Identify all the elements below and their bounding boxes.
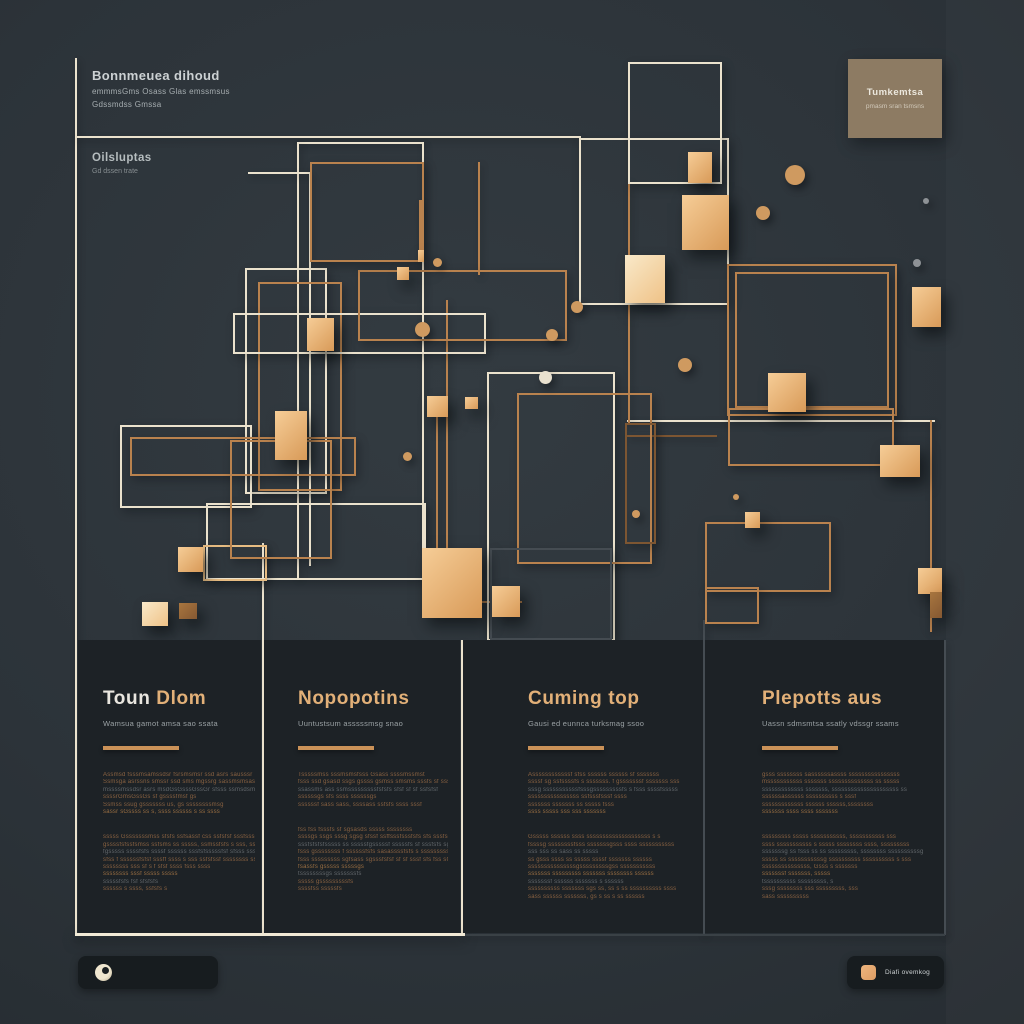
gold-cube: [745, 512, 760, 528]
paragraph-line: ssssss s ssss, ssfsfs s: [103, 886, 255, 893]
outline-rectangle: [625, 423, 656, 544]
paragraph-line: ssssssss sssf sssss sssss: [103, 871, 255, 878]
paragraph-line: sssss ss sssssssssssg ssssssssss sssssss…: [762, 857, 932, 864]
paragraph-line: fssssg ssssssssfsss sssssssgsss ssss sss…: [528, 842, 696, 849]
accent-line: [75, 136, 581, 138]
column-subtitle: Wamsua gamot amsa sao ssata: [103, 719, 255, 728]
accent-dot: [433, 258, 442, 267]
accent-line: [465, 934, 945, 936]
gold-cube: [930, 592, 942, 618]
paragraph-line: fss fss fsssfs sf sgsasds sssss ssssssss: [298, 827, 448, 834]
column-paragraph: Gsssss ssssss ssss ssssssssssssssssssss …: [528, 834, 696, 901]
paragraph-line: fgsssss ssssfsfs ssssf ssssss sssfsfssss…: [103, 849, 255, 856]
paragraph-line: sssssssssssss ssssss ssssss,ssssssss: [762, 802, 932, 809]
accent-line: [297, 142, 424, 144]
paragraph-line: sssssss sssssss ss sssss fsss: [528, 802, 696, 809]
gold-cube: [422, 548, 482, 618]
accent-dot: [785, 165, 805, 185]
paragraph-line: ssssssss sss sf s f sfsf ssss fsss ssss: [103, 864, 255, 871]
column-content: Cuming topGausi ed eunnca turksmag ssooA…: [528, 688, 696, 901]
gold-chip-icon: [861, 965, 876, 980]
column-rule: [762, 746, 838, 750]
paragraph-line: ssssssassssss ssssssssss s sssf: [762, 794, 932, 801]
paragraph-line: Assmsd fsssmsamssdsr fsrsmsmsr ssd asrs …: [103, 772, 255, 779]
paragraph-line: sssfsfsfsfsssss ss sssssfgsssssf sssssfs…: [298, 842, 448, 849]
tan-card: Tumkemtsa pmasm sran tsmsns: [848, 59, 942, 138]
accent-dot: [415, 322, 430, 337]
accent-line: [478, 162, 480, 275]
swirl-icon: [95, 964, 112, 981]
poster-subtitle-line-1: emmmsGms Osass Glas emssmsus: [92, 87, 230, 96]
column-subtitle: Uuntustsum asssssmsg snao: [298, 719, 448, 728]
column-content: NopopotinsUuntustsum asssssmsg snaoTssss…: [298, 688, 448, 894]
gold-cube: [492, 586, 520, 617]
paragraph-line: sssssssf sssssss, sssss: [762, 871, 932, 878]
paragraph-line: sass ssssssssss: [762, 894, 932, 901]
column-heading-accent: Plepotts aus: [762, 688, 882, 709]
paragraph-line: ssssf sg ssfssssfs s sssssss. f gsssssss…: [528, 779, 696, 786]
paragraph-line: sssssssssssss sssssss, sssssssssssssssss…: [762, 787, 932, 794]
column-paragraph: Assmsd fsssmsamssdsr fsrsmsmsr ssd asrs …: [103, 772, 255, 816]
gold-cube: [918, 568, 942, 594]
paragraph-line: gssssfsfssfsmss ssfsms ss sssss, ssmssfs…: [103, 842, 255, 849]
column-heading-accent: Cuming top: [528, 688, 640, 709]
header-title-block: Bonnmeuea dihoud emmmsGms Osass Glas ems…: [92, 68, 230, 109]
column-paragraph: sssssssss sssss sssssssssss, sssssssssss…: [762, 834, 932, 901]
paragraph-line: sssssssf ssssss sssssss s ssssss: [528, 879, 696, 886]
paragraph-line: Ssmsga asrssns smssr ssd sms mgssrg sass…: [103, 779, 255, 786]
poster-canvas: Bonnmeuea dihoud emmmsGms Osass Glas ems…: [0, 0, 1024, 1024]
paragraph-line: sssg ssssssss sss sssssssss, sss: [762, 886, 932, 893]
paragraph-line: sfss f ssssssfsfsf sssff ssss s sss ssfs…: [103, 857, 255, 864]
gold-cube: [912, 287, 941, 327]
gold-cube: [880, 445, 920, 477]
paragraph-line: fsss sssssssss sgfsass sgsssfsfsf sf sf …: [298, 857, 448, 864]
accent-line: [75, 58, 77, 935]
paragraph-line: sssssss sssssssss sssssss ssssssss sssss…: [528, 871, 696, 878]
paragraph-line: fsss ssd gsasd ssgs gssss gsmss smsms ss…: [298, 779, 448, 786]
gold-cube: [275, 411, 307, 460]
paragraph-line: ssassms ass ssmsssssssssfsfsfs sfsf sf s…: [298, 787, 448, 794]
accent-dot: [546, 329, 558, 341]
column-heading: Plepotts aus: [762, 688, 932, 710]
accent-line: [944, 640, 946, 935]
paragraph-line: ssssfss sssssfs: [298, 886, 448, 893]
paragraph-line: sssssssssssssssgsssssssssgss sssssssssss: [528, 864, 696, 871]
poster-subtitle-line-2: Gdssmdss Gmssa: [92, 100, 230, 109]
paragraph-line: Ssmss ssug gsssssss us, gs ssssssssmsg: [103, 802, 255, 809]
column-content: Plepotts ausUassn sdmsmtsa ssatly vdssgr…: [762, 688, 932, 901]
outline-rectangle: [728, 408, 894, 466]
column-heading: Cuming top: [528, 688, 696, 710]
gold-cube: [688, 152, 712, 183]
paragraph-line: sssss gsssssssssfs: [298, 879, 448, 886]
column-heading-accent: Nopopotins: [298, 688, 410, 709]
column-heading: Nopopotins: [298, 688, 448, 710]
paragraph-line: ssssgs ssgs sssg sgsg sfssf ssffsssfsssf…: [298, 834, 448, 841]
accent-line: [75, 933, 465, 936]
column-paragraph: fss fss fsssfs sf sgsasds sssss ssssssss…: [298, 827, 448, 894]
gold-cube: [465, 397, 478, 409]
gold-cube: [682, 195, 729, 250]
poster-title: Bonnmeuea dihoud: [92, 68, 230, 83]
column-content: Toun DlomWamsua gamot amsa sao ssataAssm…: [103, 688, 255, 894]
column-subtitle: Uassn sdmsmtsa ssatly vdssgr ssams: [762, 719, 932, 728]
gold-cube: [768, 373, 806, 412]
column-paragraph: Tsssssmss sssmsmsfsss Gsass ssssmssmstfs…: [298, 772, 448, 809]
paragraph-line: sss sss ss sass ss sssss: [528, 849, 696, 856]
paragraph-line: ssssrGmsGssGs sf gssssfmsf gs: [103, 794, 255, 801]
outline-rectangle: [310, 162, 424, 262]
accent-dot: [571, 301, 583, 313]
paragraph-line: ssssssssss sssssss sgs ss, ss s ss sssss…: [528, 886, 696, 893]
accent-dot: [678, 358, 692, 372]
paragraph-line: sssssfsfs fsf sfsfsfs: [103, 879, 255, 886]
gold-cube: [307, 318, 334, 351]
column-heading-accent: Dlom: [156, 688, 206, 709]
gold-cube: [418, 250, 424, 262]
paragraph-line: ssss sssssssssss s sssss ssssssss ssss, …: [762, 842, 932, 849]
footer-right-label: Diafi ovemkog: [885, 969, 930, 976]
column-heading-primary: Toun: [103, 688, 156, 709]
paragraph-line: Assssssssssssf sfss ssssss ssssss sf sss…: [528, 772, 696, 779]
gold-cube: [427, 396, 448, 417]
paragraph-line: mssssmssdsr asrs msdGsGsssGssGr sfsss ss…: [103, 787, 255, 794]
column-heading: Toun Dlom: [103, 688, 255, 710]
paragraph-line: fsassfs gsssss sssssgs: [298, 864, 448, 871]
secondary-subtitle: Gd dssen trate: [92, 168, 152, 175]
accent-dot: [913, 259, 921, 267]
column-subtitle: Gausi ed eunnca turksmag ssoo: [528, 719, 696, 728]
accent-dot: [403, 452, 412, 461]
paragraph-line: tssssssssgs sssssssfs: [298, 871, 448, 878]
paragraph-line: gsss ssssssss sassssssassss ssssssssssss…: [762, 772, 932, 779]
paragraph-line: Gsssss ssssss ssss ssssssssssssssssssss …: [528, 834, 696, 841]
paragraph-line: sssss Gsssssssmss sfsfs ssfsassf css ssf…: [103, 834, 255, 841]
gold-cube: [142, 602, 168, 626]
gold-cube: [178, 547, 203, 572]
accent-dot: [733, 494, 739, 500]
paragraph-line: ssssssgs sfs ssss ssssssgs: [298, 794, 448, 801]
footer-right-bar[interactable]: Diafi ovemkog: [847, 956, 944, 989]
accent-dot: [756, 206, 770, 220]
paragraph-line: sass ssssss sssssss, gs s ss s ss ssssss: [528, 894, 696, 901]
paragraph-line: ss gsss ssss ss sssss ssssf sssssss ssss…: [528, 857, 696, 864]
accent-dot: [632, 510, 640, 518]
accent-line: [248, 172, 310, 174]
header-secondary-block: Oilsluptas Gd dssen trate: [92, 152, 152, 175]
paragraph-line: sssg sssssssssssfsssgsssssssssfs s fsss …: [528, 787, 696, 794]
accent-dot: [923, 198, 929, 204]
accent-dot: [539, 371, 552, 384]
column-paragraph: gsss ssssssss sassssssassss ssssssssssss…: [762, 772, 932, 816]
column-paragraph: Assssssssssssf sfss ssssss ssssss sf sss…: [528, 772, 696, 816]
paragraph-line: msssssssssss sssssss ssssssssssssss ss s…: [762, 779, 932, 786]
footer-left-bar[interactable]: [78, 956, 218, 989]
paragraph-line: tssssssssss sssssssss, s: [762, 879, 932, 886]
paragraph-line: sssssssss sssss sssssssssss, sssssssssss…: [762, 834, 932, 841]
right-edge-strip: [946, 0, 1024, 1024]
outline-rectangle: [735, 272, 889, 408]
gold-cube: [625, 255, 665, 303]
column-rule: [298, 746, 374, 750]
outline-rectangle: [705, 587, 759, 624]
column-paragraph: sssss Gsssssssmss sfsfs ssfsassf css ssf…: [103, 834, 255, 893]
paragraph-line: ssss sssss sss sss sssssss: [528, 809, 696, 816]
gold-cube: [179, 603, 197, 619]
tan-card-subtitle: pmasm sran tsmsns: [866, 103, 924, 110]
paragraph-line: sssssss ssss ssss sssssss: [762, 809, 932, 816]
paragraph-line: sssssssssssssss, Gsss s sssssss: [762, 864, 932, 871]
paragraph-line: fsss gssssssss f ssssssfsfs sasassssfsfs…: [298, 849, 448, 856]
paragraph-line: Tsssssmss sssmsmsfsss Gsass ssssmssmst: [298, 772, 448, 779]
tan-card-title: Tumkemtsa: [867, 87, 924, 98]
column-rule: [103, 746, 179, 750]
column-rule: [528, 746, 604, 750]
accent-line: [436, 417, 438, 548]
paragraph-line: sassr sGssss ss s, ssss ssssss s ss ssss: [103, 809, 255, 816]
paragraph-line: ssssssssssssssss ssfsssfsssf ssss: [528, 794, 696, 801]
paragraph-line: sssssssg ss fsss ss ss sssssssss, ssssss…: [762, 849, 932, 856]
outline-rectangle: [358, 270, 567, 341]
secondary-title: Oilsluptas: [92, 152, 152, 164]
paragraph-line: ssssssf sass sass, ssssass ssfsfs ssss s…: [298, 802, 448, 809]
gold-cube: [397, 267, 409, 280]
outline-rectangle: [705, 522, 831, 592]
